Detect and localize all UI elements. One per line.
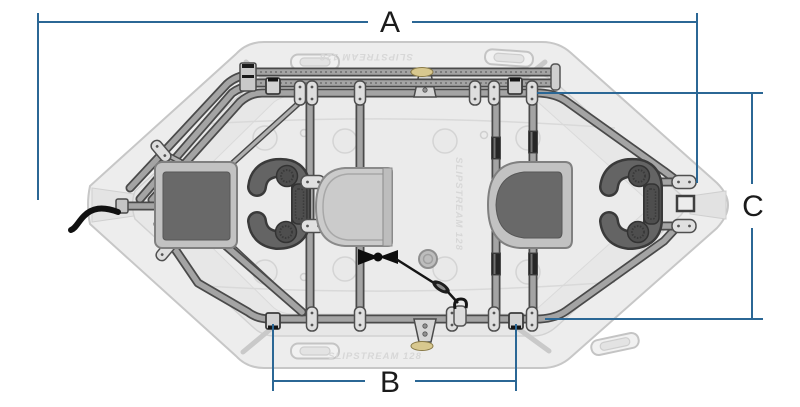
- strap-anchor-tab: [454, 306, 466, 326]
- bar-adjuster: [492, 253, 501, 275]
- rail-slider-top-left: [266, 78, 280, 94]
- bar-adjuster: [529, 253, 538, 275]
- oar-stop-bottom: [411, 342, 433, 351]
- floor-drain-plug: [419, 250, 437, 268]
- seat-center-cooler: [316, 168, 392, 246]
- model-text-top: SLIPSTREAM 128: [319, 51, 413, 62]
- seat-right: [488, 162, 572, 248]
- raft-frame-dimension-diagram: SLIPSTREAM 128 SLIPSTREAM 128 SLIPSTREAM…: [0, 0, 800, 407]
- frame-tip-square-clamp: [677, 196, 694, 211]
- frame-tip-fitting-upper: [672, 176, 696, 189]
- model-text-middle: SLIPSTREAM 128: [453, 157, 464, 251]
- bar-adjuster: [529, 131, 538, 153]
- model-text-bottom: SLIPSTREAM 128: [328, 351, 422, 362]
- oar-stop-top: [411, 68, 433, 77]
- rail-slider-top-right: [508, 78, 522, 94]
- frame-tip-fitting-lower: [672, 220, 696, 233]
- carry-handle-top-right: [485, 49, 534, 67]
- hull-right-tip-wall: [690, 191, 726, 219]
- dim-b-label: B: [380, 366, 400, 399]
- gear-rail-end-clamp: [551, 64, 560, 90]
- dim-c-label: C: [742, 190, 764, 223]
- carry-handle-bottom-right: [590, 332, 640, 357]
- diagram-canvas: SLIPSTREAM 128 SLIPSTREAM 128 SLIPSTREAM…: [0, 0, 800, 407]
- seat-left: [155, 162, 237, 248]
- bar-adjuster: [492, 137, 501, 159]
- dim-a-label: A: [380, 6, 400, 39]
